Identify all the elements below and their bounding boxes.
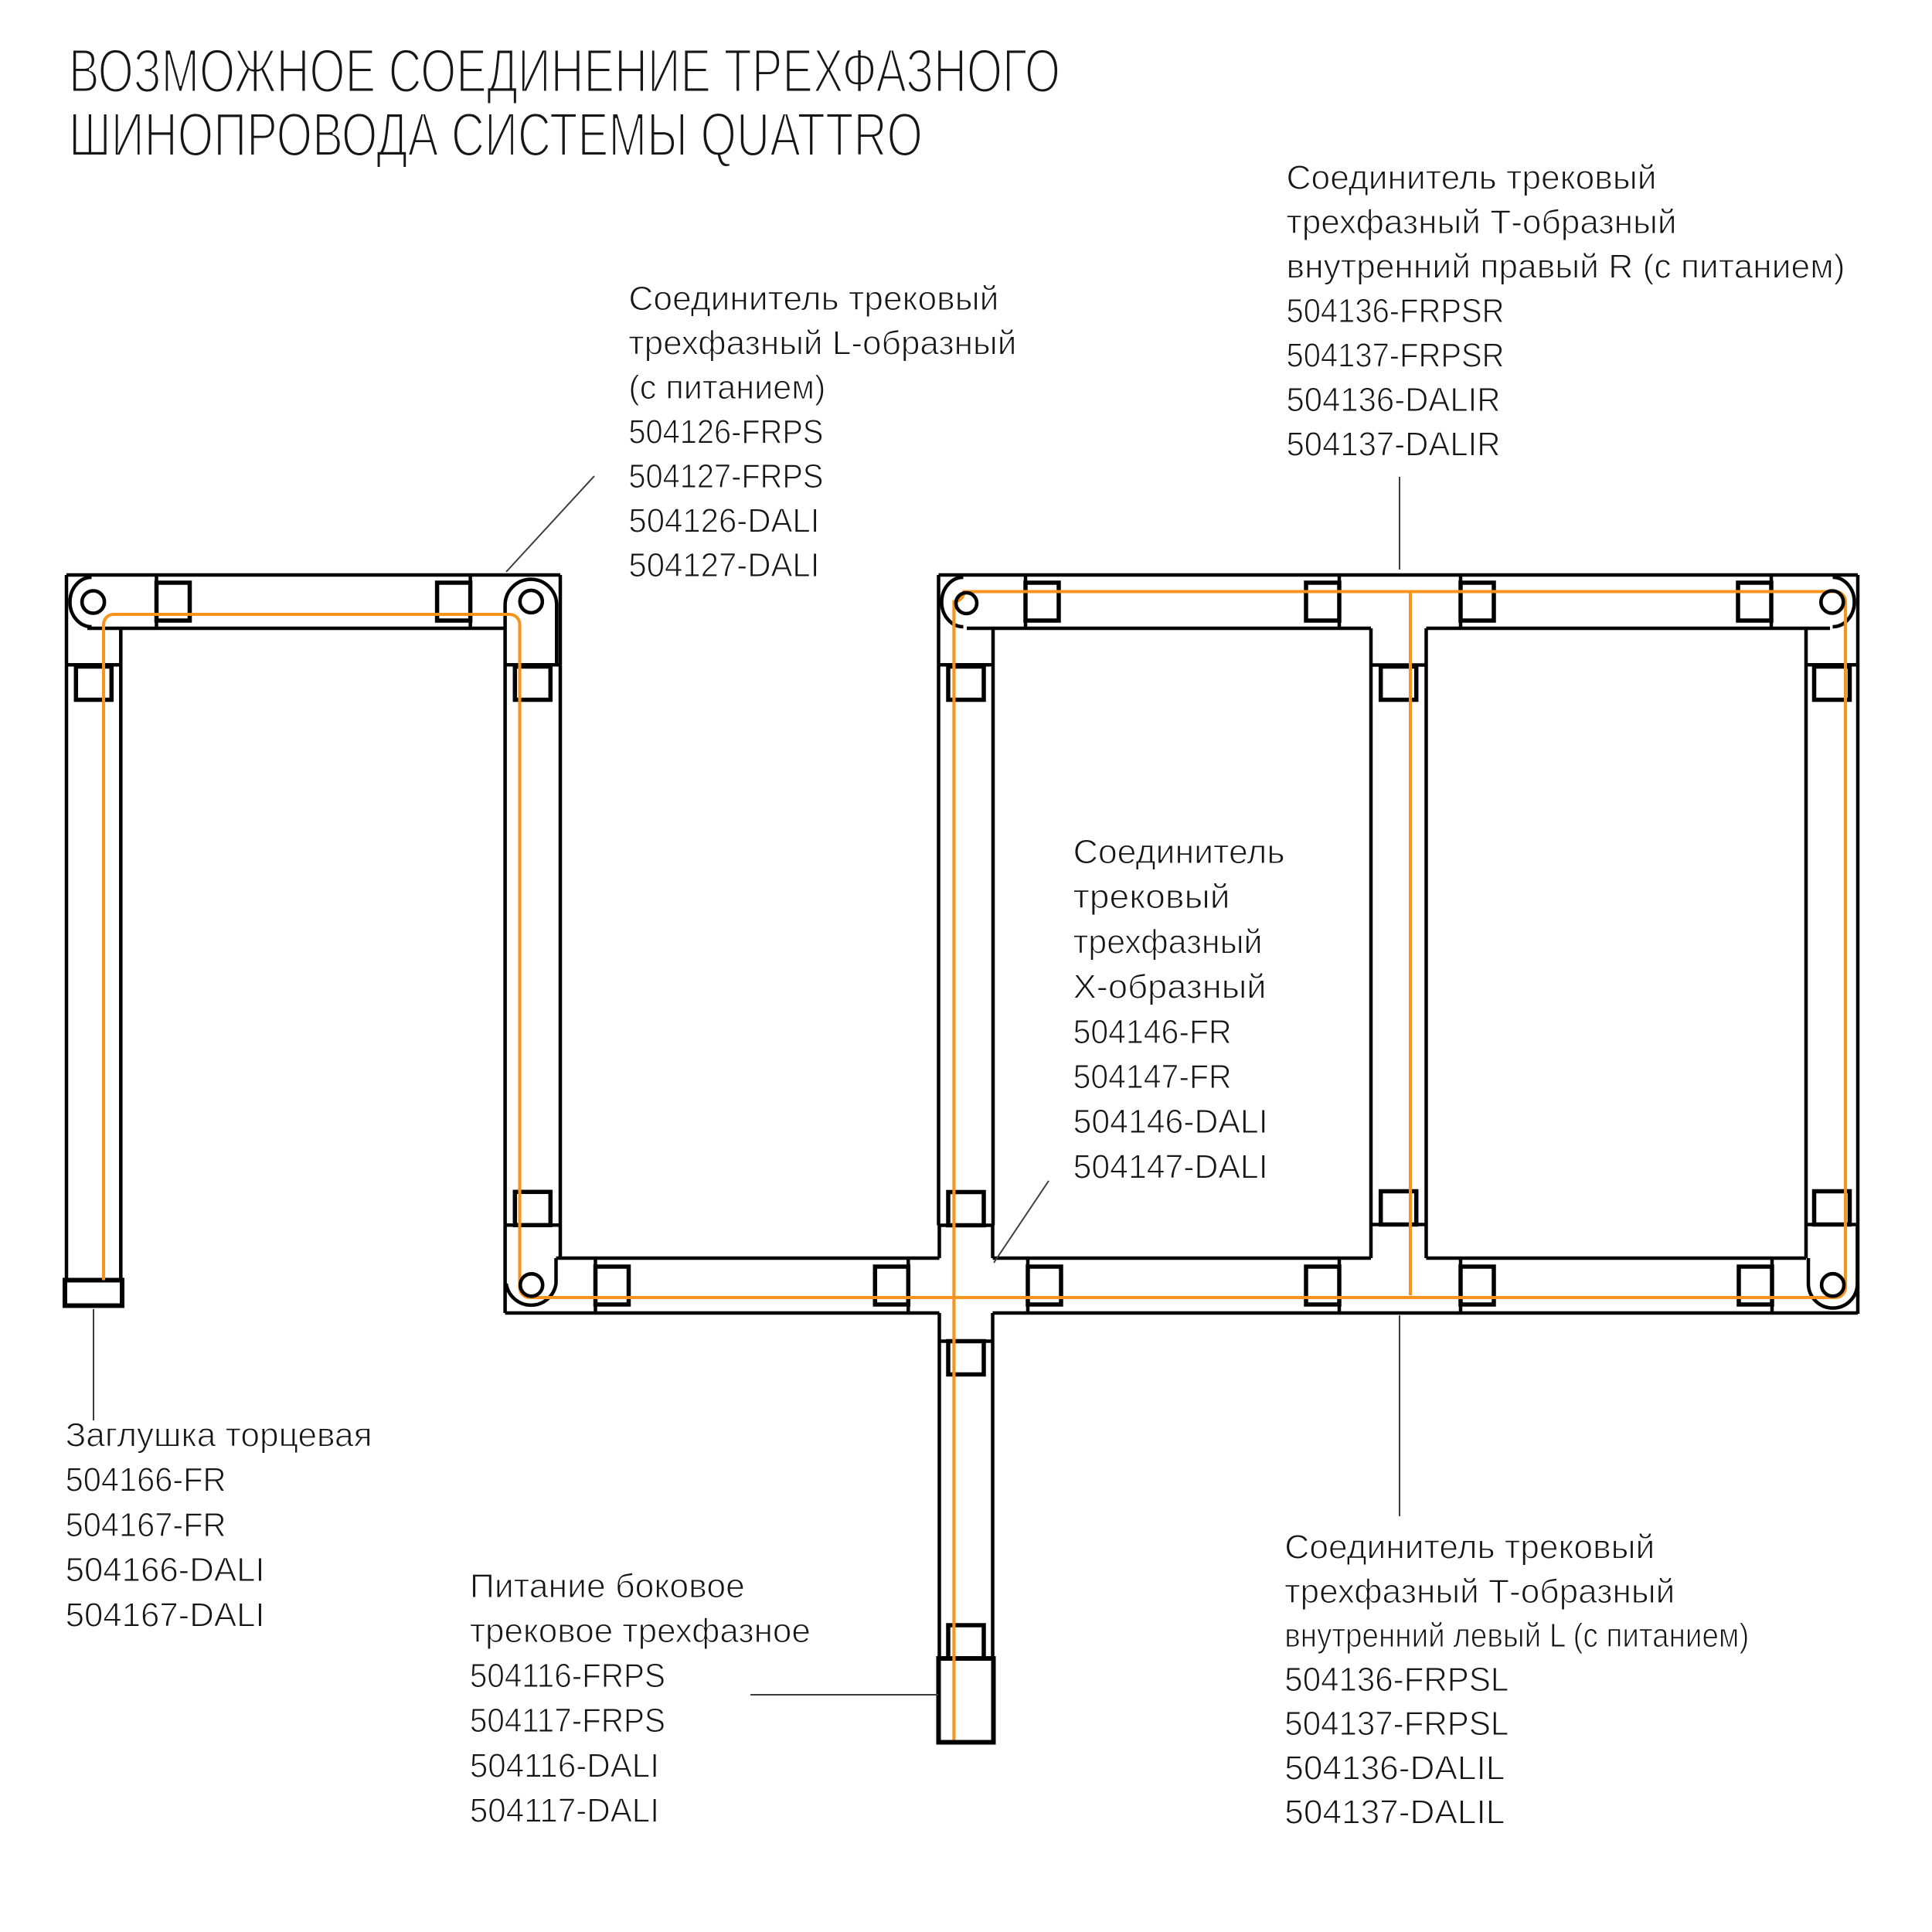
svg-text:внутренний правый R (с питание: внутренний правый R (с питанием): [1287, 248, 1845, 286]
svg-text:504167-FR: 504167-FR: [66, 1506, 226, 1544]
svg-text:504137-DALIR: 504137-DALIR: [1287, 426, 1501, 464]
svg-text:Х-образный: Х-образный: [1073, 968, 1267, 1006]
svg-text:ШИНОПРОВОДА СИСТЕМЫ QUATTRO: ШИНОПРОВОДА СИСТЕМЫ QUATTRO: [69, 100, 923, 169]
svg-text:трековое трехфазное: трековое трехфазное: [470, 1612, 811, 1650]
svg-text:Соединитель трековый: Соединитель трековый: [1284, 1529, 1655, 1566]
svg-text:Соединитель трековый: Соединитель трековый: [1287, 159, 1657, 197]
svg-text:Питание боковое: Питание боковое: [470, 1567, 745, 1605]
svg-text:504146-DALI: 504146-DALI: [1073, 1103, 1268, 1141]
svg-text:504126-FRPS: 504126-FRPS: [628, 413, 823, 451]
svg-text:трехфазный: трехфазный: [1073, 923, 1263, 961]
svg-text:трехфазный L-образный: трехфазный L-образный: [628, 325, 1016, 362]
svg-text:трековый: трековый: [1073, 878, 1230, 916]
svg-text:504136-FRPSL: 504136-FRPSL: [1284, 1661, 1509, 1699]
svg-text:Заглушка торцевая: Заглушка торцевая: [66, 1416, 372, 1454]
svg-text:(с питанием): (с питанием): [628, 369, 825, 406]
svg-text:504147-DALI: 504147-DALI: [1073, 1148, 1268, 1185]
svg-text:504146-FR: 504146-FR: [1073, 1013, 1232, 1051]
svg-text:504127-DALI: 504127-DALI: [628, 546, 819, 584]
svg-text:504127-FRPS: 504127-FRPS: [628, 457, 823, 495]
svg-text:трехфазный Т-образный: трехфазный Т-образный: [1287, 203, 1677, 241]
svg-text:внутренний левый L (с питанием: внутренний левый L (с питанием): [1284, 1617, 1749, 1655]
svg-text:Соединитель: Соединитель: [1073, 833, 1285, 871]
svg-text:504166-FR: 504166-FR: [66, 1461, 226, 1499]
svg-text:ВОЗМОЖНОЕ СОЕДИНЕНИЕ ТРЕХФАЗНО: ВОЗМОЖНОЕ СОЕДИНЕНИЕ ТРЕХФАЗНОГО: [69, 36, 1060, 105]
svg-text:504136-FRPSR: 504136-FRPSR: [1287, 292, 1505, 330]
svg-text:504136-DALIR: 504136-DALIR: [1287, 381, 1501, 419]
svg-text:504136-DALIL: 504136-DALIL: [1284, 1749, 1505, 1787]
svg-text:504117-DALI: 504117-DALI: [470, 1791, 659, 1829]
svg-text:504137-DALIL: 504137-DALIL: [1284, 1793, 1505, 1831]
svg-text:504147-FR: 504147-FR: [1073, 1058, 1232, 1096]
svg-text:504167-DALI: 504167-DALI: [66, 1596, 265, 1634]
svg-text:504166-DALI: 504166-DALI: [66, 1551, 265, 1589]
svg-text:504116-DALI: 504116-DALI: [470, 1747, 659, 1784]
svg-text:трехфазный Т-образный: трехфазный Т-образный: [1284, 1573, 1675, 1611]
svg-text:504137-FRPSL: 504137-FRPSL: [1284, 1705, 1509, 1743]
svg-text:504126-DALI: 504126-DALI: [628, 502, 819, 540]
svg-text:504137-FRPSR: 504137-FRPSR: [1287, 337, 1505, 375]
svg-text:504116-FRPS: 504116-FRPS: [470, 1657, 665, 1695]
svg-text:Соединитель трековый: Соединитель трековый: [628, 280, 998, 318]
svg-text:504117-FRPS: 504117-FRPS: [470, 1702, 665, 1740]
